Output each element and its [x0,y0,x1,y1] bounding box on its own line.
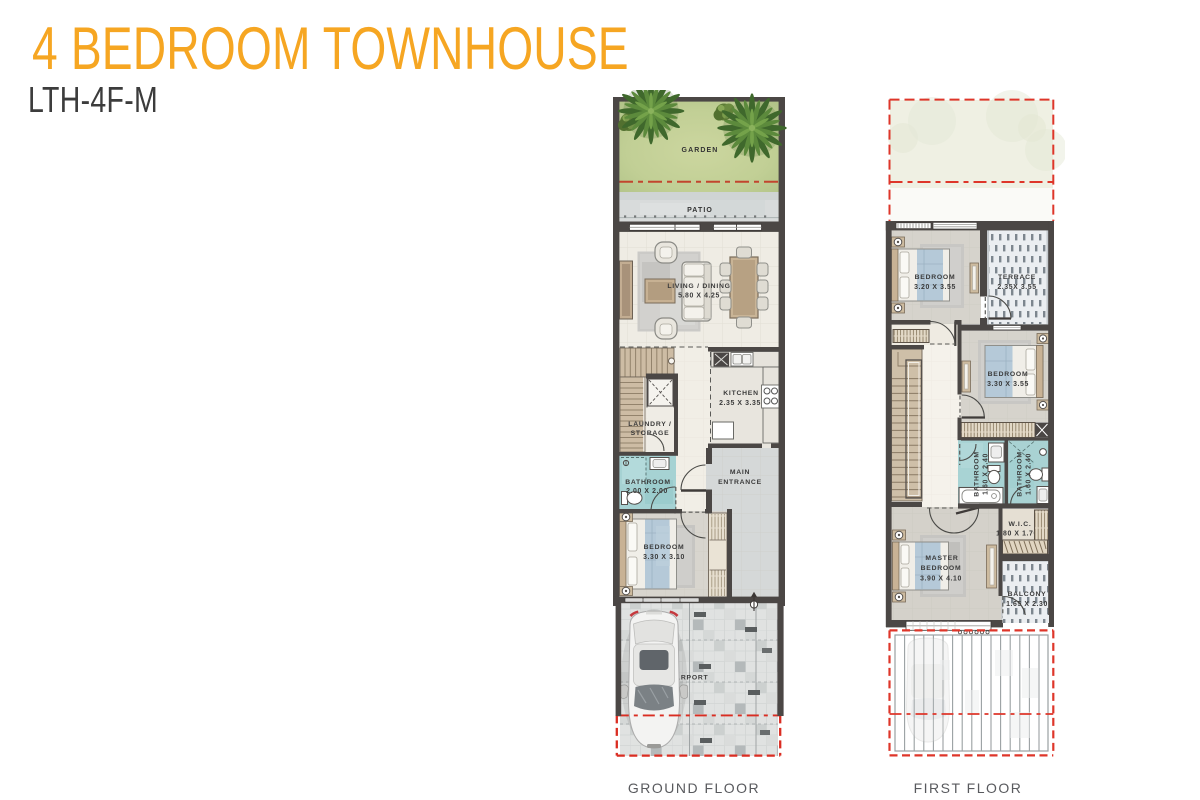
svg-text:MAIN: MAIN [730,469,750,476]
svg-text:3.90 X 4.10: 3.90 X 4.10 [920,576,962,583]
svg-text:1.60 X 2.40: 1.60 X 2.40 [1026,453,1033,495]
svg-text:STORAGE: STORAGE [631,430,670,437]
svg-text:BEDROOM: BEDROOM [644,544,685,551]
svg-text:KITCHEN: KITCHEN [723,390,758,397]
svg-text:PATIO: PATIO [687,207,713,214]
svg-text:1.60 X 2.40: 1.60 X 2.40 [983,453,990,495]
svg-text:GARDEN: GARDEN [682,147,719,154]
svg-text:BALCONY: BALCONY [1008,591,1047,598]
svg-text:TERRACE: TERRACE [998,274,1036,281]
svg-text:LAUNDRY /: LAUNDRY / [628,421,671,428]
svg-text:2.35X 3.55: 2.35X 3.55 [997,284,1036,291]
svg-text:BATHROOM: BATHROOM [625,479,671,486]
svg-text:BEDROOM: BEDROOM [988,371,1029,378]
svg-text:3.30 X 3.10: 3.30 X 3.10 [643,554,685,561]
svg-text:2.35 X 3.35: 2.35 X 3.35 [719,400,761,407]
svg-text:3.30 X 3.55: 3.30 X 3.55 [987,381,1029,388]
svg-text:3.20 X 3.55: 3.20 X 3.55 [914,284,956,291]
svg-text:LIVING / DINING: LIVING / DINING [667,283,730,290]
svg-text:ENTRANCE: ENTRANCE [718,479,762,486]
svg-text:1.65 X 2.30: 1.65 X 2.30 [1006,601,1048,608]
svg-text:BEDROOM: BEDROOM [915,274,956,281]
svg-text:BEDROOM: BEDROOM [921,565,962,572]
svg-text:BATHROOM: BATHROOM [974,451,981,497]
svg-text:5.80 X 4.25: 5.80 X 4.25 [678,293,720,300]
svg-text:MASTER: MASTER [925,555,958,562]
svg-text:W.I.C.: W.I.C. [1008,521,1031,528]
